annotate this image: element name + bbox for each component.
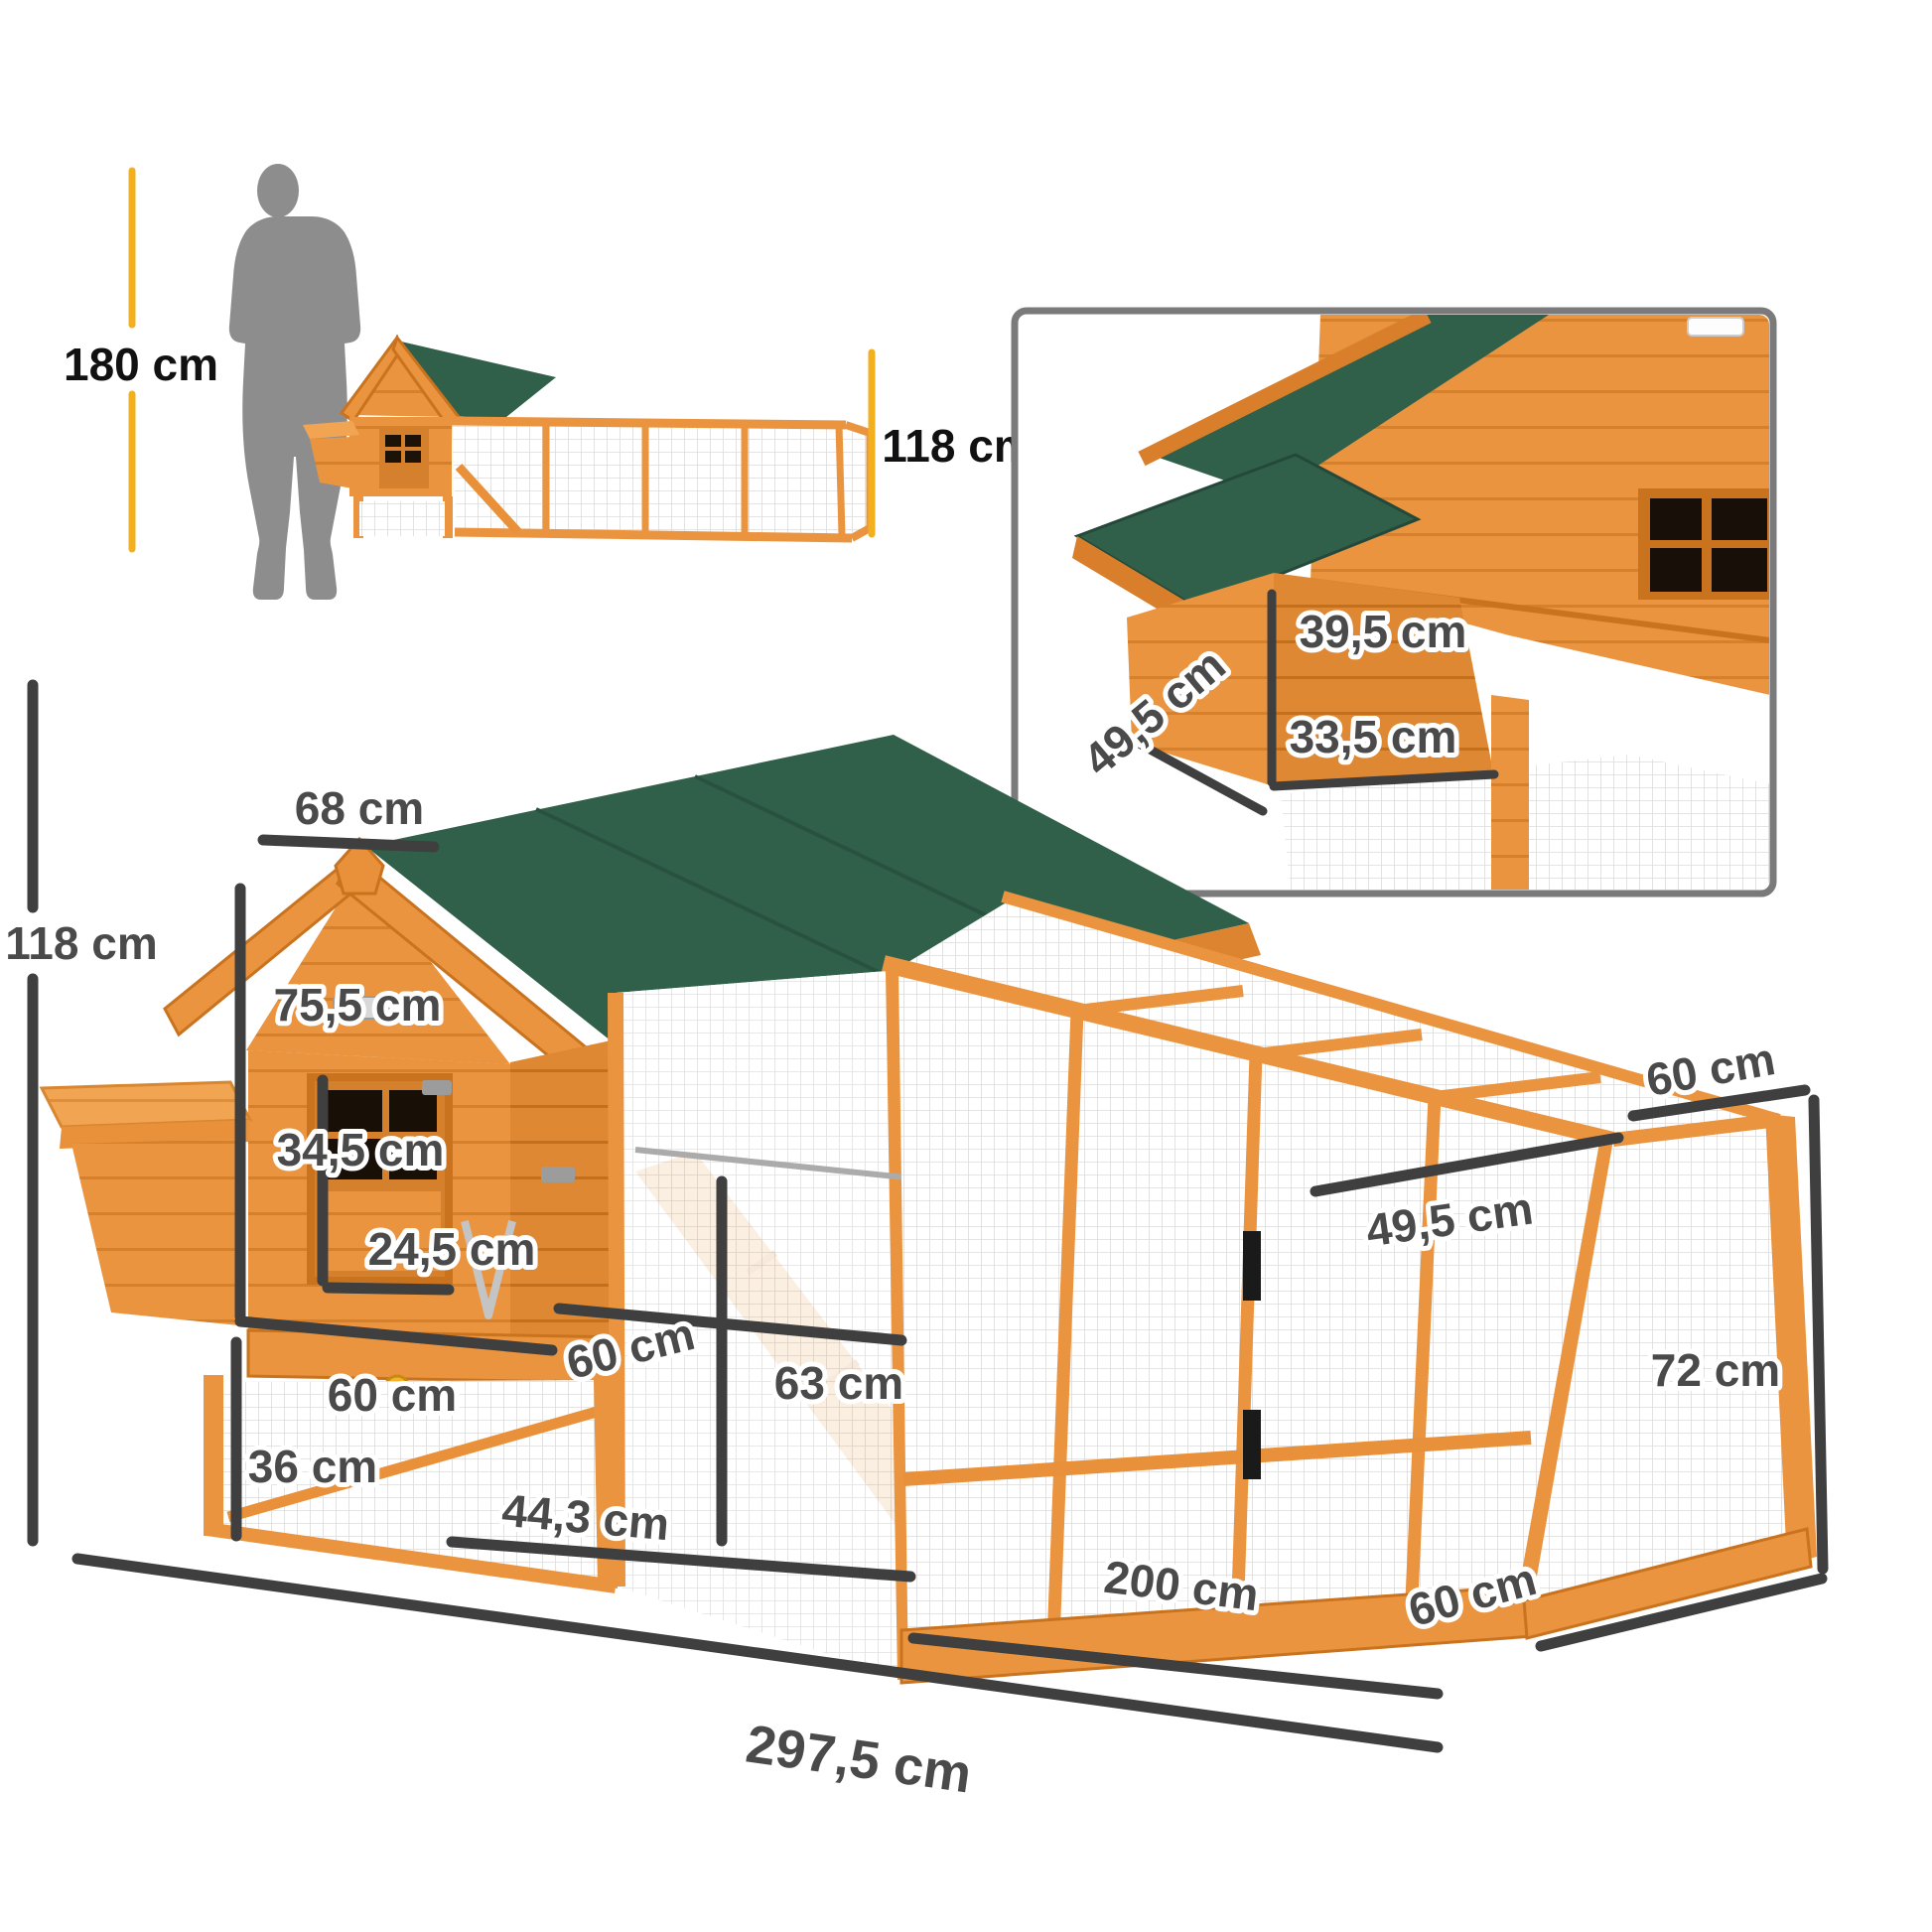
dim-total-length: 297,5 cm bbox=[743, 1714, 975, 1804]
person-silhouette bbox=[229, 164, 360, 600]
inset-detail-box: 39,5 cm 49,5 cm 33,5 cm bbox=[1015, 311, 1777, 894]
small-coop bbox=[303, 338, 870, 538]
diagram-canvas: 180 cm bbox=[0, 0, 1932, 1932]
person-height-label: 180 cm bbox=[64, 339, 218, 390]
door-width-line bbox=[328, 1288, 449, 1290]
dim-total-height: 118 cm bbox=[5, 917, 157, 969]
dim-ground-clearance: 36 cm bbox=[248, 1441, 377, 1492]
nest-box bbox=[42, 1082, 250, 1325]
mesh-panel-height-line bbox=[1814, 1100, 1823, 1569]
dim-house-height: 75,5 cm bbox=[274, 979, 442, 1031]
inset-dim-bottom: 33,5 cm bbox=[1290, 711, 1457, 762]
dim-roof-width: 68 cm bbox=[295, 782, 424, 834]
dim-door-height: 34,5 cm bbox=[277, 1124, 445, 1175]
brand-sticker bbox=[1688, 318, 1743, 336]
inset-dim-top: 39,5 cm bbox=[1300, 606, 1467, 657]
dim-door-width: 24,5 cm bbox=[368, 1223, 536, 1275]
scale-figure: 180 cm bbox=[64, 164, 1035, 600]
dim-run-inner-height: 63 cm bbox=[774, 1357, 903, 1409]
product-dimension-diagram: 180 cm bbox=[0, 0, 1932, 1932]
dim-mesh-panel-height: 72 cm bbox=[1651, 1344, 1780, 1396]
roof-width-line bbox=[263, 840, 434, 847]
dim-house-depth: 60 cm bbox=[328, 1369, 457, 1421]
